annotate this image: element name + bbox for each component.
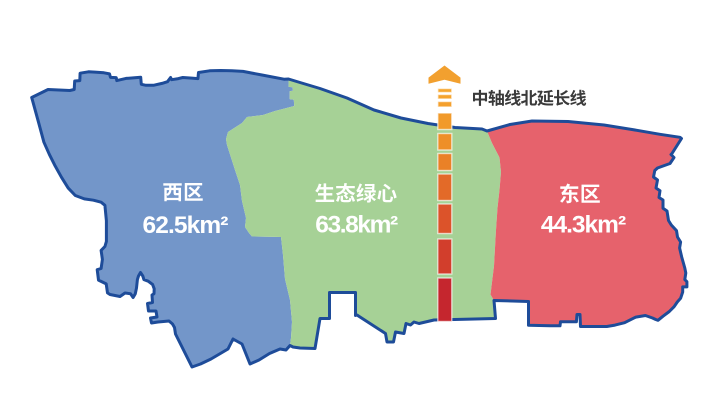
svg-text:63.8km²: 63.8km² [315, 212, 398, 239]
svg-text:62.5km²: 62.5km² [143, 212, 229, 239]
svg-text:44.3km²: 44.3km² [541, 212, 626, 239]
